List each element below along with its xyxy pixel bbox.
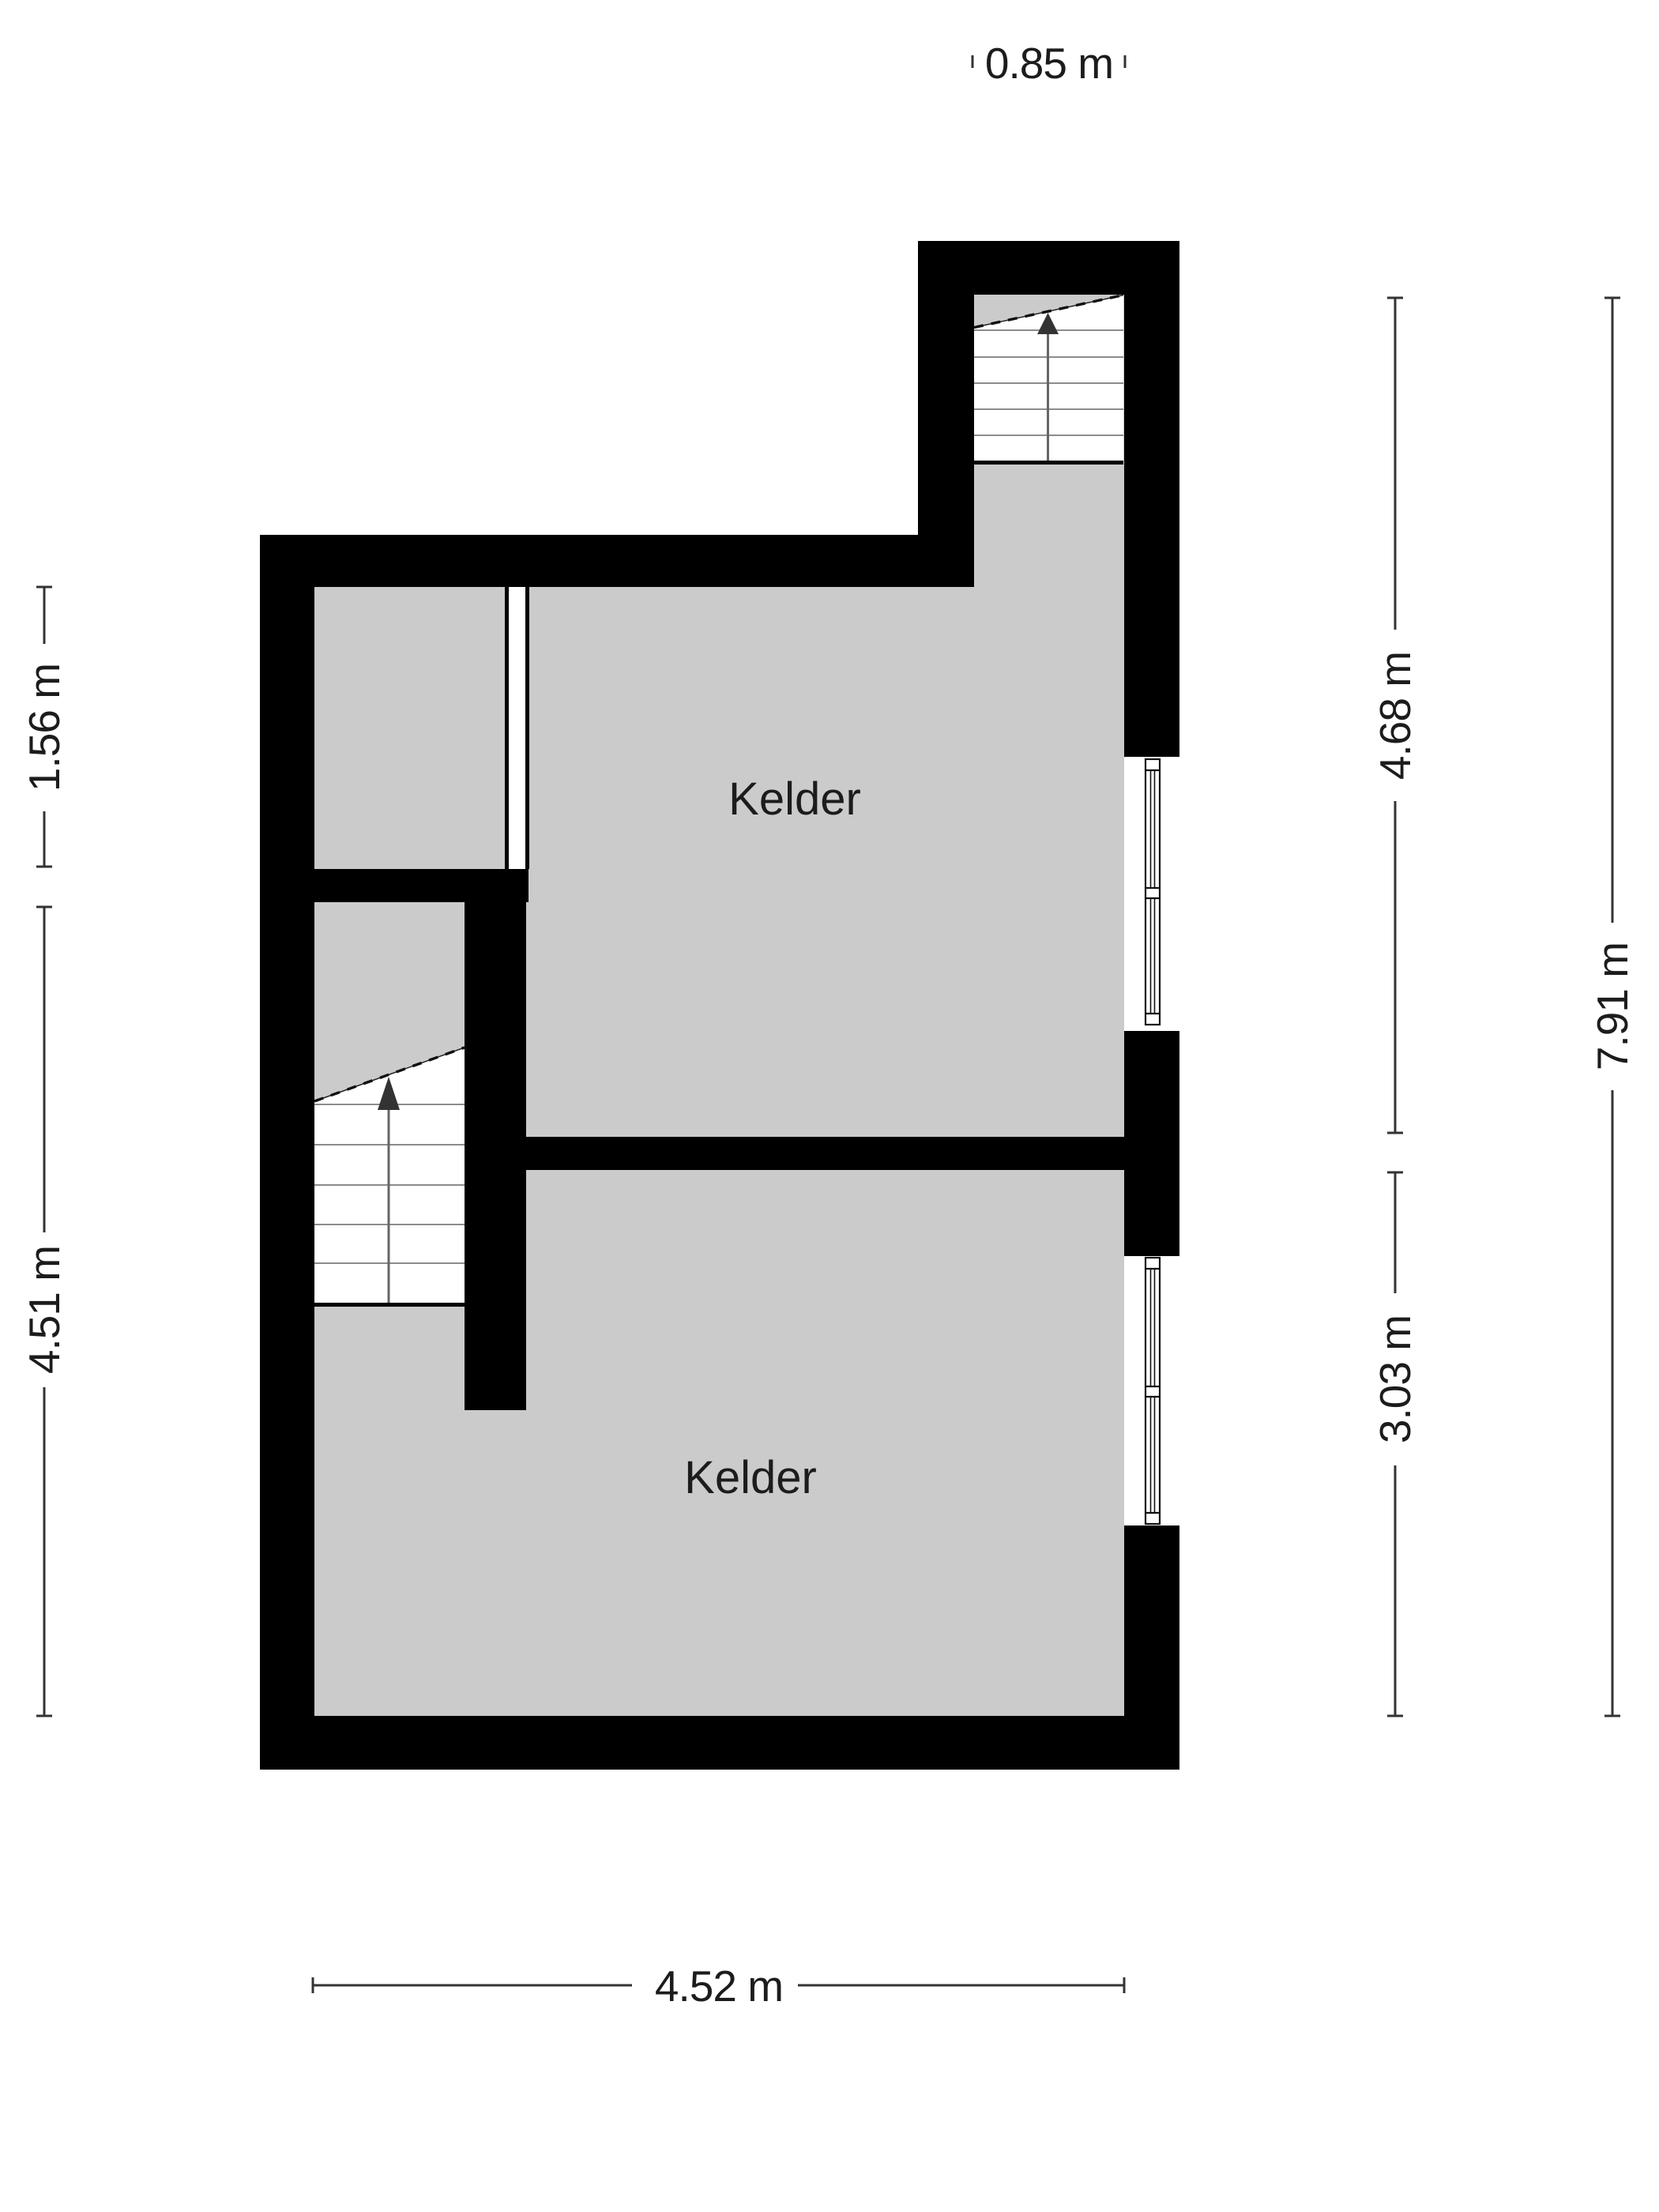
svg-text:Kelder: Kelder xyxy=(684,1452,817,1503)
svg-text:0.85 m: 0.85 m xyxy=(985,39,1113,88)
svg-text:1.56 m: 1.56 m xyxy=(20,664,69,792)
svg-text:7.91 m: 7.91 m xyxy=(1588,942,1637,1070)
svg-text:4.68 m: 4.68 m xyxy=(1371,652,1420,780)
svg-text:Kelder: Kelder xyxy=(728,773,861,825)
svg-text:4.52 m: 4.52 m xyxy=(655,1962,783,2011)
svg-text:4.51 m: 4.51 m xyxy=(20,1246,69,1374)
svg-text:3.03 m: 3.03 m xyxy=(1371,1315,1420,1443)
